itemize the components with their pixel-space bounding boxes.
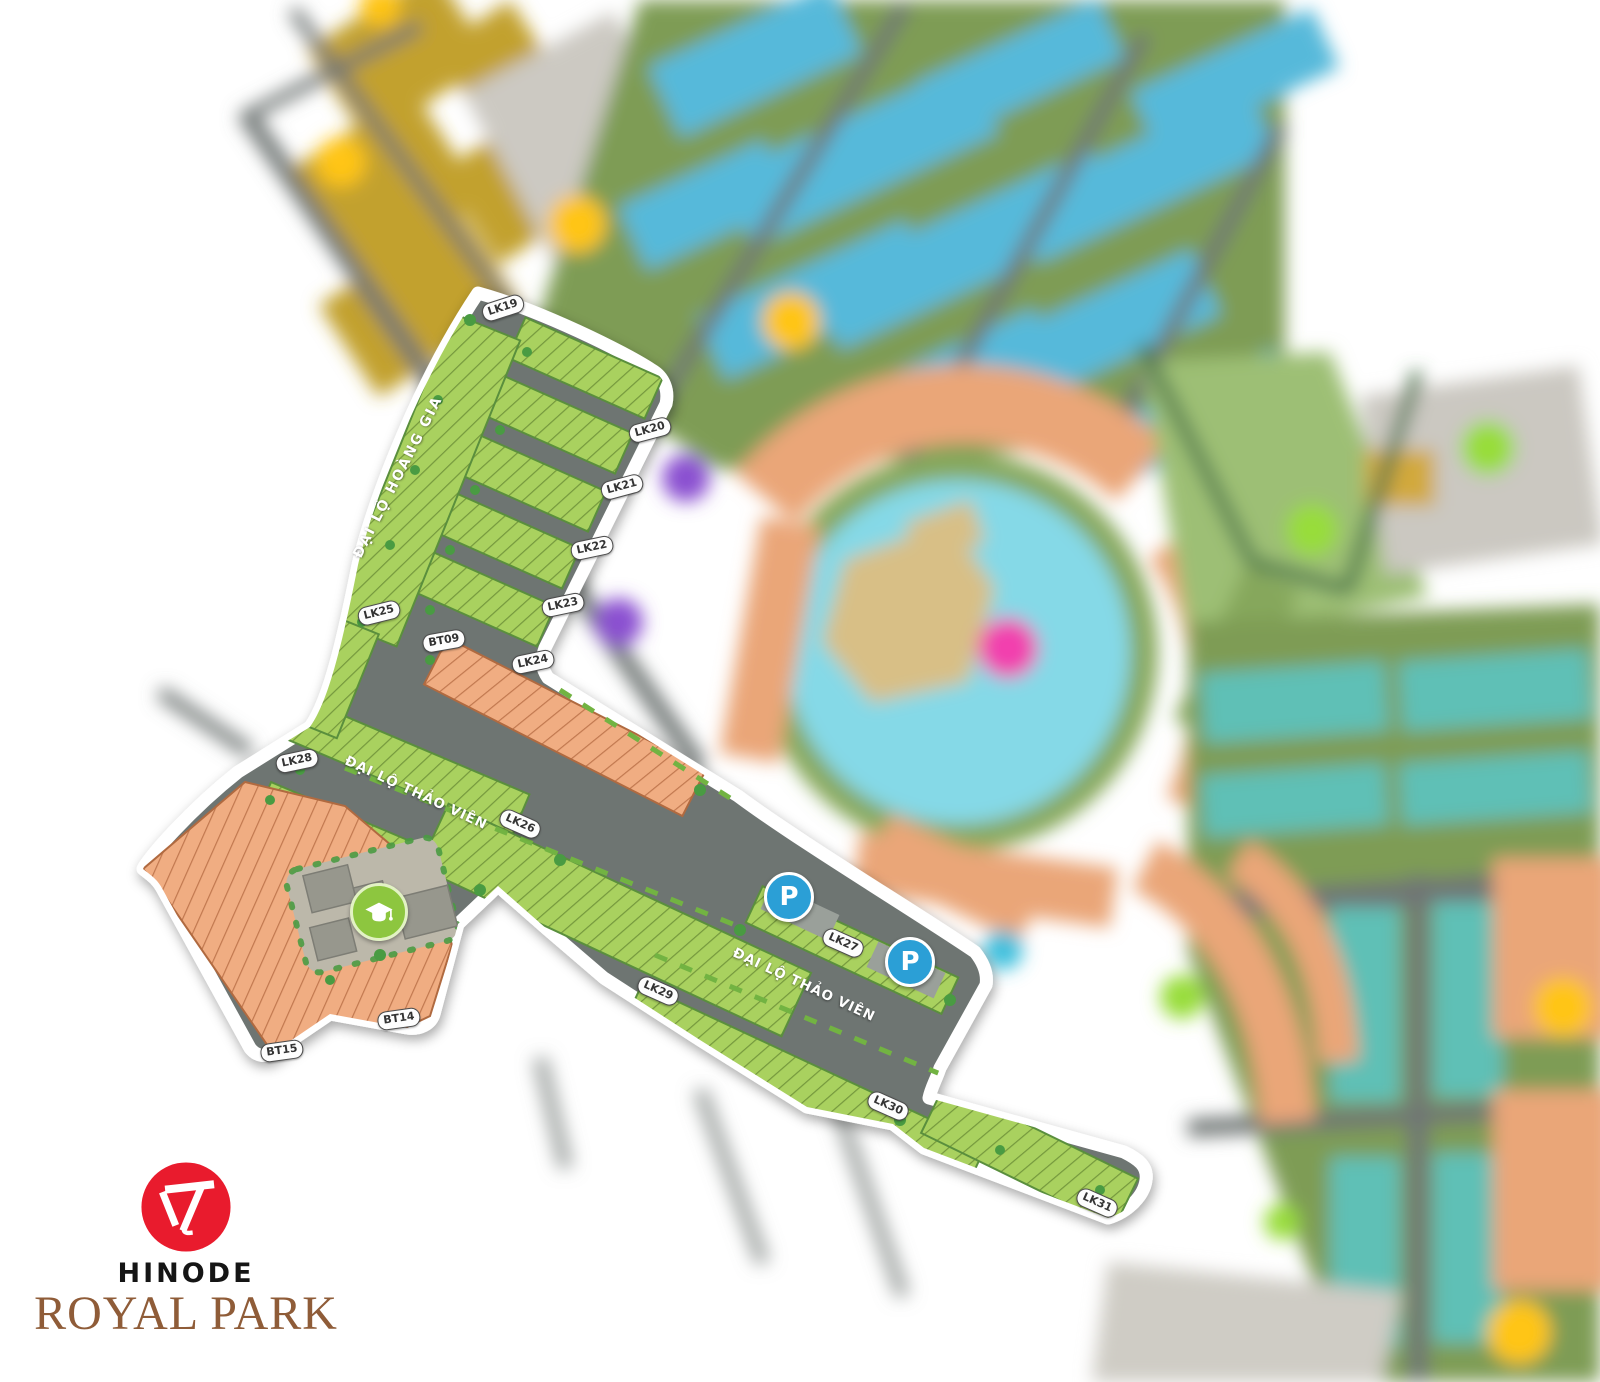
blurred-pink-amenity-dot (978, 618, 1038, 678)
logo: HINODE ROYAL PARK (26, 1158, 346, 1339)
blurred-central-lake (758, 452, 1158, 852)
brand-name-hinode: HINODE (26, 1258, 346, 1289)
hinode-logo-icon (137, 1158, 235, 1256)
brand-name-royal-park: ROYAL PARK (26, 1289, 346, 1339)
masterplan-page: ĐẠI LỘ HOÀNG GIAĐẠI LỘ THẢO VIÊNĐẠI LỘ T… (0, 0, 1600, 1382)
